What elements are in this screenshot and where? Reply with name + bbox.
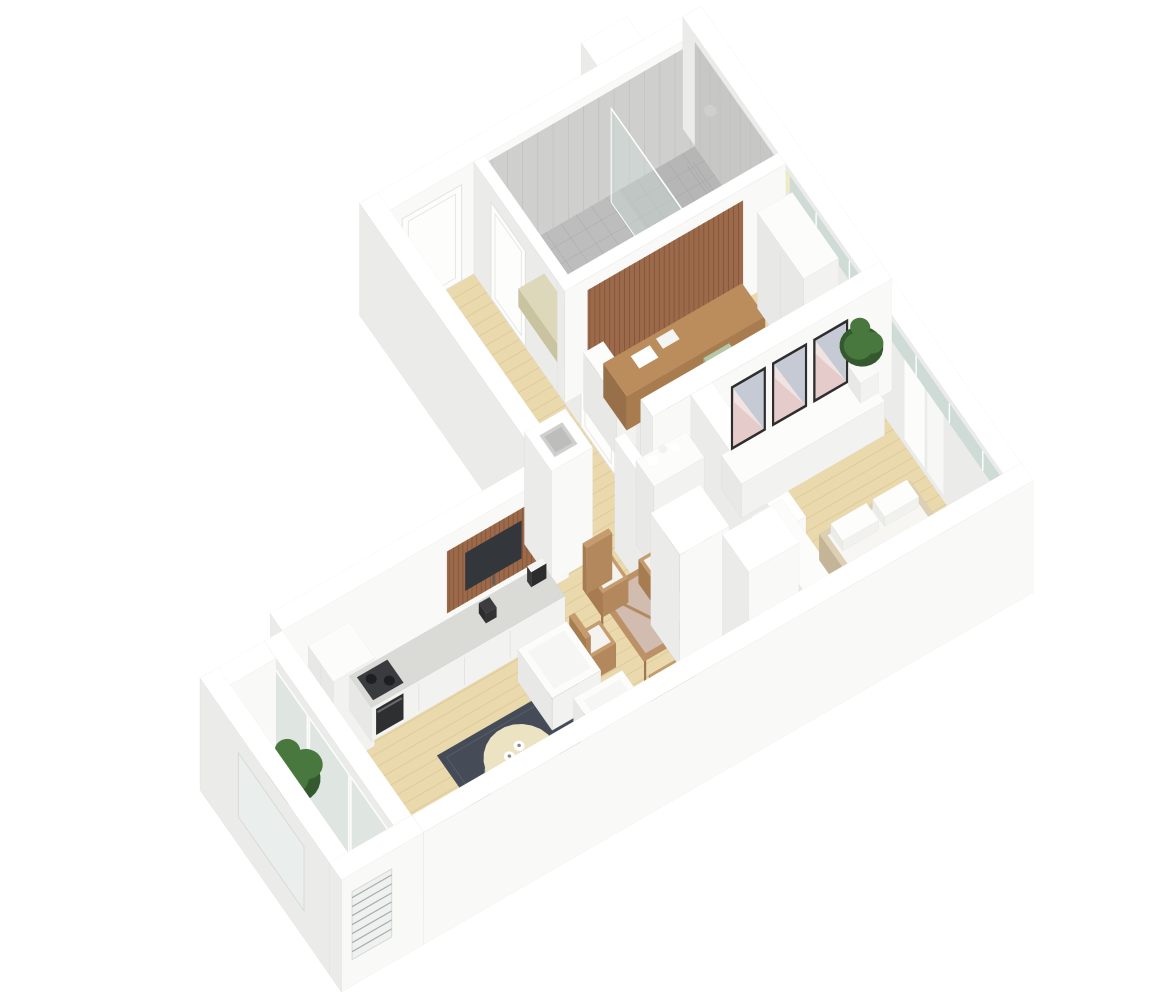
apartment-3d-render bbox=[0, 0, 1170, 995]
installation-shaft bbox=[524, 408, 592, 583]
apartment-floorplan-stage: 3D isometric apartment floor plan render bbox=[0, 0, 1170, 995]
